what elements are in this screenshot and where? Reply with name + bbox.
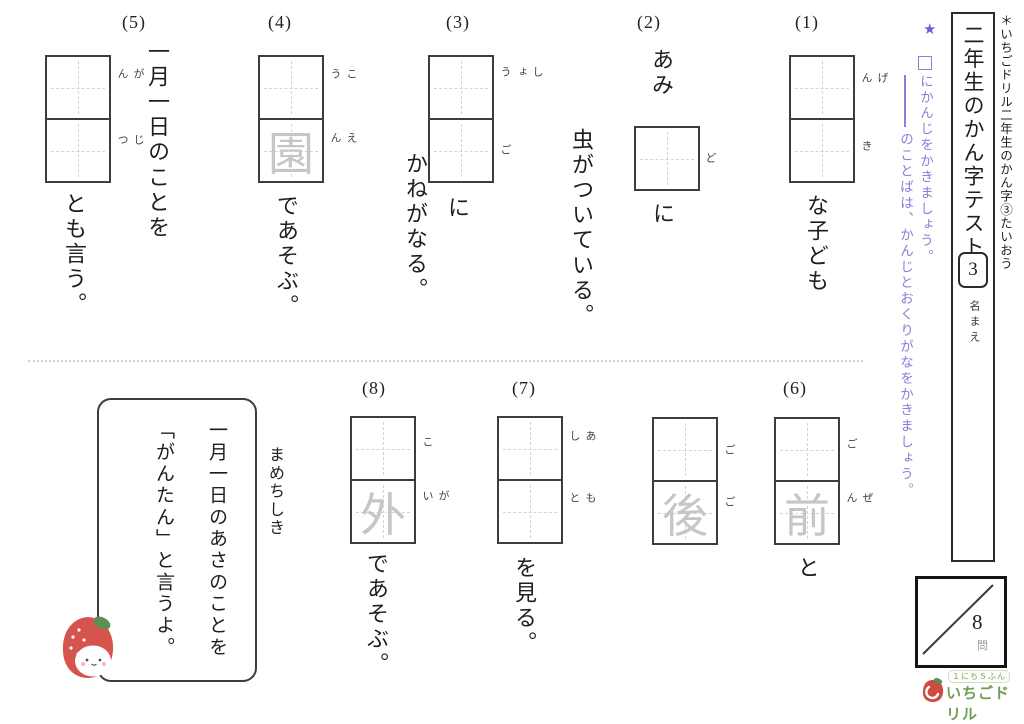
- worksheet-page: ＊いちごドリル二年生のかん字③たいおう 二年生のかん字テスト 3 名まえ ★ に…: [0, 0, 1024, 724]
- answer-boxes[interactable]: 園: [258, 55, 324, 183]
- furigana: ぜん: [843, 492, 875, 506]
- kanji-box[interactable]: [791, 118, 853, 181]
- page-title: 二年生のかん字テスト: [958, 24, 988, 259]
- answer-boxes[interactable]: 前: [774, 417, 840, 545]
- question-text: 虫がついている。: [565, 128, 597, 329]
- ghost-kanji: 前: [776, 482, 838, 543]
- answer-boxes[interactable]: [634, 126, 700, 191]
- star-icon: ★: [923, 20, 936, 39]
- instruction-text-2: のことばは、かんじとおくりがなをかきましょう。: [898, 132, 913, 498]
- kanji-box[interactable]: [636, 128, 698, 189]
- furigana: ご: [843, 438, 859, 452]
- ghost-kanji: 園: [260, 120, 322, 181]
- test-number-box: 3: [958, 252, 988, 288]
- furigana: げん: [858, 72, 890, 86]
- answer-box-symbol: [918, 56, 932, 70]
- kanji-box[interactable]: [260, 57, 322, 118]
- question-text: であそぶ。: [360, 552, 392, 677]
- furigana: こ: [419, 436, 435, 450]
- ghost-kanji: [654, 419, 716, 480]
- ghost-kanji: 外: [352, 481, 414, 542]
- kanji-box[interactable]: [791, 57, 853, 118]
- header-note: ＊いちごドリル二年生のかん字③たいおう: [996, 14, 1015, 271]
- furigana: ご: [497, 144, 513, 158]
- question-label: (7): [512, 378, 536, 399]
- question-text: に: [646, 202, 678, 227]
- kanji-box[interactable]: [499, 418, 561, 479]
- kanji-box[interactable]: [654, 419, 716, 480]
- question-label: (2): [637, 12, 661, 33]
- furigana: こう: [327, 68, 359, 82]
- ghost-kanji: [791, 120, 853, 181]
- ghost-kanji: [430, 120, 492, 181]
- answer-boxes[interactable]: [45, 55, 111, 183]
- trivia-text-2: 「がんたん」と言うよ。: [150, 420, 177, 658]
- answer-boxes[interactable]: [497, 416, 563, 544]
- furigana: じつ: [114, 134, 146, 148]
- question-text: とも言う。: [58, 192, 90, 317]
- section-divider: [28, 360, 863, 362]
- ghost-kanji: [47, 120, 109, 181]
- kanji-box[interactable]: [776, 419, 838, 480]
- furigana: ど: [702, 152, 718, 166]
- question-text: かねがなる。: [399, 152, 431, 302]
- question-text: あみ: [645, 48, 677, 98]
- ghost-kanji: [791, 57, 853, 118]
- question-text: と: [791, 556, 823, 581]
- question-label: (4): [268, 12, 292, 33]
- question-text: に: [441, 196, 473, 221]
- instruction-line-2: のことばは、かんじとおくりがなをかきましょう。: [895, 74, 915, 498]
- ghost-kanji: [499, 481, 561, 542]
- ghost-kanji: [636, 128, 698, 189]
- kanji-box[interactable]: 外: [352, 479, 414, 542]
- ghost-kanji: 後: [654, 482, 716, 543]
- ghost-kanji: [776, 419, 838, 480]
- question-text: な子ども: [800, 194, 832, 294]
- question-text: を見る。: [508, 556, 540, 656]
- furigana: がい: [419, 490, 451, 504]
- ghost-kanji: [352, 418, 414, 479]
- furigana: ご: [721, 496, 737, 510]
- answer-boxes[interactable]: [428, 55, 494, 183]
- name-write-area[interactable]: [953, 330, 989, 554]
- trivia-label: まめちしき: [262, 446, 286, 537]
- furigana: えん: [327, 132, 359, 146]
- instruction-text-1: にかんじをかきましょう。: [918, 74, 933, 265]
- question-label: (8): [362, 378, 386, 399]
- ghost-kanji: [499, 418, 561, 479]
- logo-name: いちごドリル: [946, 682, 1024, 724]
- ghost-kanji: [430, 57, 492, 118]
- furigana: き: [858, 140, 874, 154]
- furigana: がん: [114, 68, 146, 82]
- ghost-kanji: [260, 57, 322, 118]
- question-label: (3): [446, 12, 470, 33]
- score-box[interactable]: [915, 576, 1007, 668]
- furigana: もと: [566, 492, 598, 506]
- question-text: であそぶ。: [270, 194, 302, 319]
- question-label: (1): [795, 12, 819, 33]
- test-number: 3: [968, 259, 978, 281]
- trivia-text-1: 一月一日のあさのことを: [203, 420, 230, 658]
- furigana: ご: [721, 444, 737, 458]
- kanji-box[interactable]: 前: [776, 480, 838, 543]
- kanji-box[interactable]: [430, 118, 492, 181]
- answer-boxes[interactable]: [789, 55, 855, 183]
- furigana: しょう: [497, 66, 545, 80]
- kanji-box[interactable]: 園: [260, 118, 322, 181]
- question-label: (5): [122, 12, 146, 33]
- question-label: (6): [783, 378, 807, 399]
- furigana: あし: [566, 430, 598, 444]
- kanji-box[interactable]: [352, 418, 414, 479]
- strawberry-logo-icon: [921, 677, 945, 708]
- kanji-box[interactable]: 後: [654, 480, 716, 543]
- strawberry-mascot: [60, 610, 118, 693]
- kanji-box[interactable]: [430, 57, 492, 118]
- underline-symbol: [904, 75, 906, 127]
- ghost-kanji: [47, 57, 109, 118]
- kanji-box[interactable]: [499, 479, 561, 542]
- kanji-box[interactable]: [47, 57, 109, 118]
- trivia-box: [97, 398, 257, 682]
- answer-boxes[interactable]: 後: [652, 417, 718, 545]
- score-unit: 問: [977, 637, 988, 653]
- score-total: 8: [972, 610, 983, 635]
- instruction-line-1: にかんじをかきましょう。: [915, 54, 935, 265]
- kanji-box[interactable]: [47, 118, 109, 181]
- answer-boxes[interactable]: 外: [350, 416, 416, 544]
